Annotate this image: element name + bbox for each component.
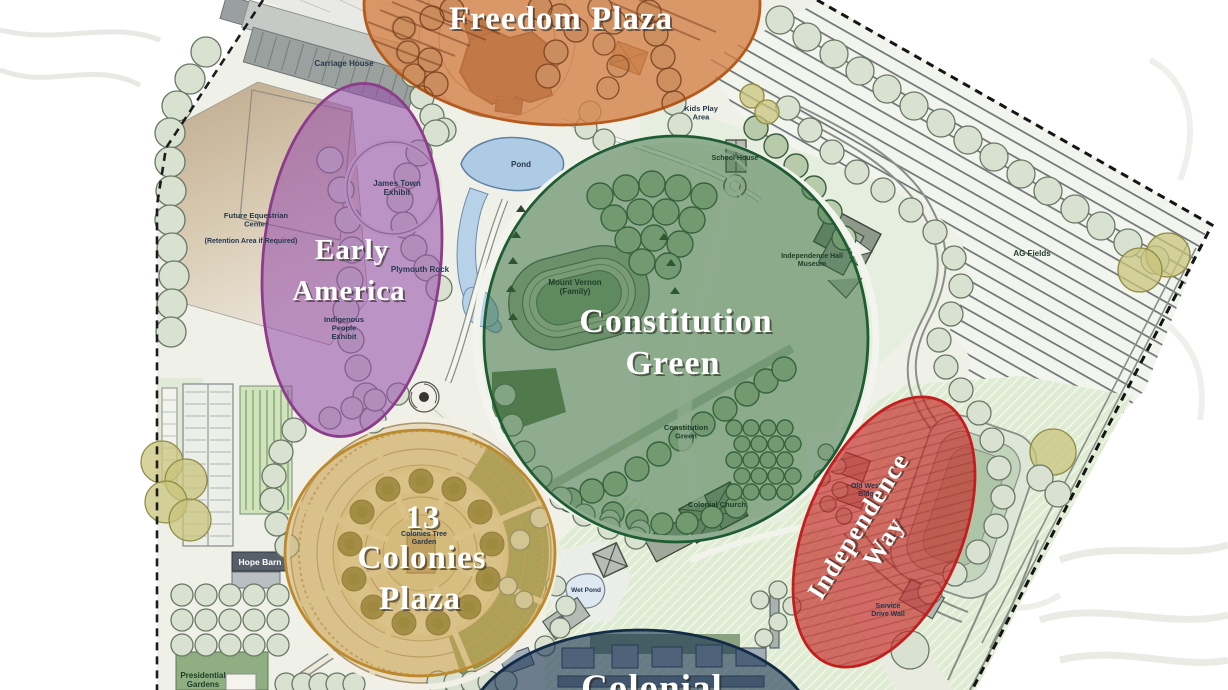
- svg-text:Freedom Plaza: Freedom Plaza: [449, 1, 673, 37]
- svg-text:13: 13: [406, 500, 441, 536]
- svg-text:PresidentialGardens: PresidentialGardens: [180, 671, 225, 689]
- svg-text:Plymouth Rock: Plymouth Rock: [391, 265, 450, 274]
- svg-text:Pond: Pond: [511, 160, 531, 169]
- svg-text:Wet Pond: Wet Pond: [571, 587, 601, 594]
- svg-text:AG Fields: AG Fields: [1013, 249, 1051, 258]
- svg-text:Colonial: Colonial: [581, 668, 723, 690]
- svg-text:Green: Green: [625, 345, 720, 382]
- svg-text:America: America: [292, 275, 405, 307]
- svg-text:Plaza: Plaza: [379, 581, 461, 617]
- svg-text:Constitution: Constitution: [579, 303, 772, 340]
- svg-text:Colonies: Colonies: [357, 540, 486, 576]
- svg-text:Early: Early: [315, 234, 389, 266]
- svg-text:ServiceDrive Wall: ServiceDrive Wall: [871, 603, 905, 618]
- svg-text:Carriage House: Carriage House: [314, 59, 374, 68]
- svg-text:Colonial Church: Colonial Church: [688, 500, 746, 509]
- svg-text:Hope Barn: Hope Barn: [239, 557, 282, 567]
- svg-text:School House: School House: [712, 155, 759, 162]
- svg-text:(Retention Area if Required): (Retention Area if Required): [205, 238, 298, 245]
